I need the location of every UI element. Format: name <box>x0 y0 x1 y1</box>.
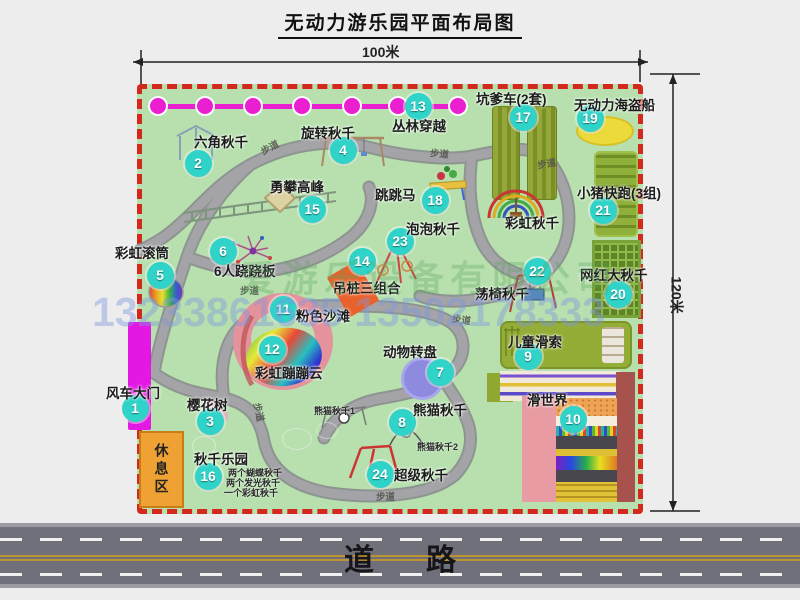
dimension-height-label: 120米 <box>667 276 687 313</box>
attraction-label: 秋千乐园 <box>194 448 248 468</box>
marker-22: 22 <box>524 258 551 285</box>
slide-world-right-band <box>616 372 635 502</box>
rest-area-label: 休息区 <box>152 443 172 497</box>
marker-14: 14 <box>349 248 376 275</box>
playground-plan-canvas: 无动力游乐园平面布局图 100米 120米 <box>0 0 800 600</box>
attraction-label: 吊桩三组合 <box>333 277 401 297</box>
road: 道路 <box>0 523 800 588</box>
attraction-label: 彩虹蹦蹦云 <box>255 362 323 382</box>
attraction-label: 小猪快跑(3组) <box>577 182 661 202</box>
slide-row-rainbow <box>556 456 617 470</box>
attraction-label: 彩虹滚筒 <box>115 242 169 262</box>
road-label: 道路 <box>0 535 800 579</box>
marker-10: 10 <box>560 406 587 433</box>
slide-row-dark2 <box>556 470 617 482</box>
slide-world-pink-band <box>522 396 556 502</box>
marker-15: 15 <box>299 196 326 223</box>
attraction-label: 泡泡秋千 <box>406 218 460 238</box>
slide-row-yellow1 <box>556 449 617 456</box>
bush-sketch <box>282 428 312 450</box>
bush-sketch <box>316 422 338 439</box>
attraction-label: 熊猫秋千 <box>413 399 467 419</box>
attraction-label: 无动力海盗船 <box>574 94 655 114</box>
marker-20: 20 <box>605 281 632 308</box>
attraction-label: 六角秋千 <box>194 131 248 151</box>
attraction-label: 樱花树 <box>187 394 228 414</box>
attraction-sublabel: 一个彩虹秋千 <box>224 486 278 499</box>
marker-7: 7 <box>427 359 454 386</box>
footpath-label: 步道 <box>429 145 449 161</box>
rest-area-box: 休息区 <box>139 431 184 508</box>
attraction-sublabel: 熊猫秋千2 <box>417 440 458 453</box>
marker-12: 12 <box>259 336 286 363</box>
attraction-label: 跳跳马 <box>375 184 416 204</box>
marker-11: 11 <box>270 296 297 323</box>
attraction-label: 勇攀高峰 <box>270 176 324 196</box>
attraction-label: 坑爹车(2套) <box>476 88 547 108</box>
attraction-label: 旋转秋千 <box>301 122 355 142</box>
attraction-label: 儿童滑索 <box>508 331 562 351</box>
dimension-width-label: 100米 <box>362 42 399 62</box>
page-title: 无动力游乐园平面布局图 <box>0 8 800 35</box>
attraction-label: 丛林穿越 <box>392 115 446 135</box>
attraction-label: 动物转盘 <box>383 341 437 361</box>
attraction-label: 网红大秋千 <box>580 264 648 284</box>
marker-24: 24 <box>367 461 394 488</box>
marker-2: 2 <box>185 150 212 177</box>
attraction-sublabel: 熊猫秋千1 <box>314 404 355 417</box>
zipline-pillar <box>602 327 624 363</box>
footpath-label: 步道 <box>451 311 472 328</box>
attraction-label: 6人跷跷板 <box>214 260 276 280</box>
marker-18: 18 <box>422 187 449 214</box>
footpath-label: 步道 <box>240 283 259 297</box>
attraction-label: 滑世界 <box>527 389 568 409</box>
marker-5: 5 <box>147 262 174 289</box>
attraction-label: 风车大门 <box>106 382 160 402</box>
footpath-label: 步道 <box>376 489 395 503</box>
attraction-label: 彩虹秋千 <box>505 212 559 232</box>
slide-row-wavy <box>556 482 617 502</box>
marker-8: 8 <box>389 409 416 436</box>
attraction-label: 粉色沙滩 <box>296 305 350 325</box>
attraction-label: 荡椅秋千 <box>475 283 529 303</box>
attraction-label: 超级秋千 <box>394 464 448 484</box>
slide-row-dark1 <box>556 436 617 449</box>
